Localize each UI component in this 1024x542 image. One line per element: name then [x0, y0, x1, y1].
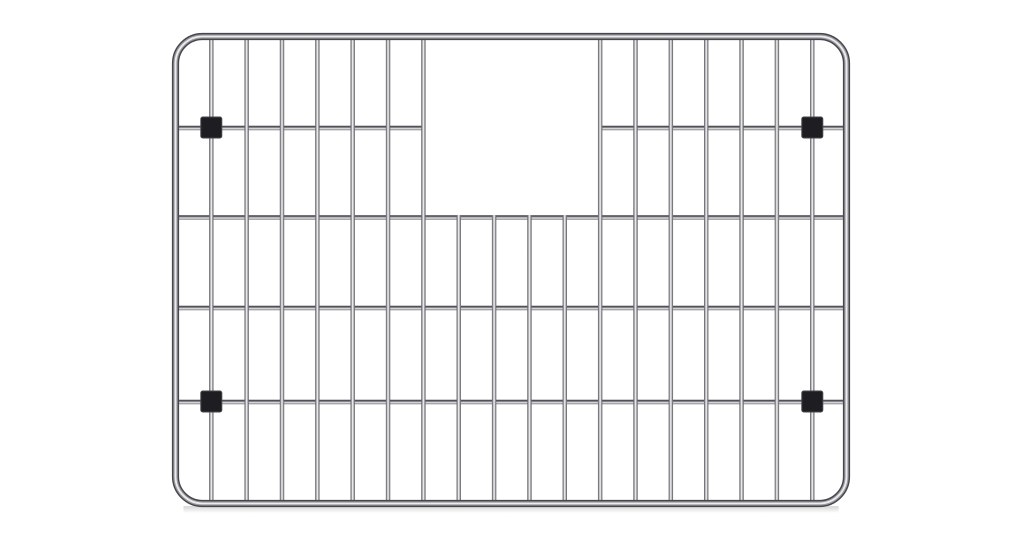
vertical-wire	[280, 37, 284, 504]
vertical-wire-short	[527, 215, 531, 504]
vertical-wire-short	[563, 215, 567, 504]
vertical-wire	[775, 37, 779, 504]
rubber-foot	[802, 391, 823, 412]
vertical-wire	[351, 37, 355, 504]
rubber-foot	[802, 117, 823, 138]
vertical-wire	[315, 37, 319, 504]
vertical-wire	[669, 37, 673, 504]
vertical-wire	[704, 37, 708, 504]
vertical-wire	[386, 37, 390, 504]
vertical-wire	[739, 37, 743, 504]
vertical-wire-short	[457, 215, 461, 504]
drop-shadow	[184, 506, 839, 513]
rubber-foot	[201, 117, 222, 138]
photo-background	[0, 0, 1024, 542]
vertical-wire	[421, 37, 425, 504]
sink-grid-svg	[0, 0, 1024, 542]
horizontal-wire	[176, 400, 847, 404]
vertical-wire	[209, 37, 213, 504]
product-photo-sink-grid	[0, 0, 1024, 542]
vertical-wire	[598, 37, 602, 504]
rubber-foot	[201, 391, 222, 412]
vertical-wire	[810, 37, 814, 504]
vertical-wire	[633, 37, 637, 504]
horizontal-wire	[176, 306, 847, 310]
vertical-wire	[244, 37, 248, 504]
vertical-wire-short	[492, 215, 496, 504]
horizontal-wire	[176, 215, 847, 219]
